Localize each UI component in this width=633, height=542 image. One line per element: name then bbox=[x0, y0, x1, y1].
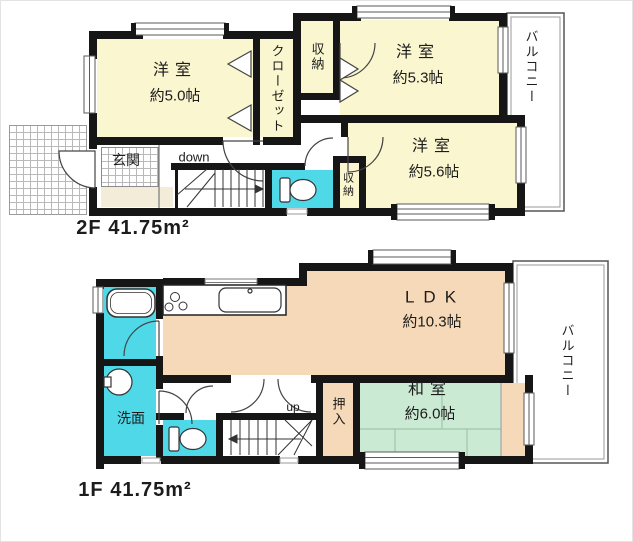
door-arc-hall bbox=[223, 141, 263, 181]
room-a-name: 洋室 bbox=[153, 63, 197, 79]
japanese-room-name: 和室 bbox=[408, 382, 452, 398]
room-b-size: 約5.3帖 bbox=[393, 71, 444, 86]
storage-top-label: 収納 bbox=[311, 42, 324, 72]
balcony-1f-label: バルコニー bbox=[561, 324, 574, 399]
ldk-name: LDK bbox=[405, 289, 465, 306]
room-c-name: 洋室 bbox=[412, 139, 456, 155]
stairs-arrow bbox=[229, 435, 237, 443]
stairs-1f bbox=[229, 420, 312, 455]
room-a-size: 約5.0帖 bbox=[150, 89, 201, 104]
stairs-down-label: down bbox=[178, 151, 209, 164]
balcony-2f-label: バルコニー bbox=[525, 30, 538, 105]
stairs-up-label: up bbox=[286, 401, 299, 413]
kitchen-counter bbox=[163, 285, 286, 315]
room-b-name: 洋室 bbox=[396, 45, 440, 61]
ldk-size: 約10.3帖 bbox=[402, 315, 461, 330]
entrance-label: 玄関 bbox=[112, 153, 140, 167]
toilet-icon bbox=[280, 178, 316, 202]
floor-label-2f: 2F 41.75m² bbox=[76, 218, 189, 238]
japanese-room-size: 約6.0帖 bbox=[405, 407, 456, 422]
door-arc-hall-a bbox=[231, 379, 264, 412]
bathtub-icon bbox=[107, 289, 155, 317]
stairs-2f bbox=[177, 169, 263, 207]
washroom-label: 洗面 bbox=[117, 411, 145, 425]
floor-label-1f: 1F 41.75m² bbox=[78, 480, 191, 500]
kitchen-sink-icon bbox=[219, 288, 281, 312]
door-arc-toilet-1f bbox=[186, 386, 213, 413]
floor-plan: 洋室 約5.0帖 クローゼット 収納 洋室 約5.3帖 洋室 約5.6帖 収納 … bbox=[0, 0, 633, 542]
storage-side-label: 収納 bbox=[342, 172, 353, 198]
door-arc-entrance bbox=[59, 151, 95, 188]
oshiire-label: 押入 bbox=[332, 397, 345, 427]
toilet-icon bbox=[169, 427, 206, 451]
door-arc-toilet-2f bbox=[305, 138, 333, 166]
closet-label: クローゼット bbox=[271, 44, 284, 134]
stairs-arrow bbox=[255, 185, 263, 193]
room-c-size: 約5.6帖 bbox=[409, 165, 460, 180]
